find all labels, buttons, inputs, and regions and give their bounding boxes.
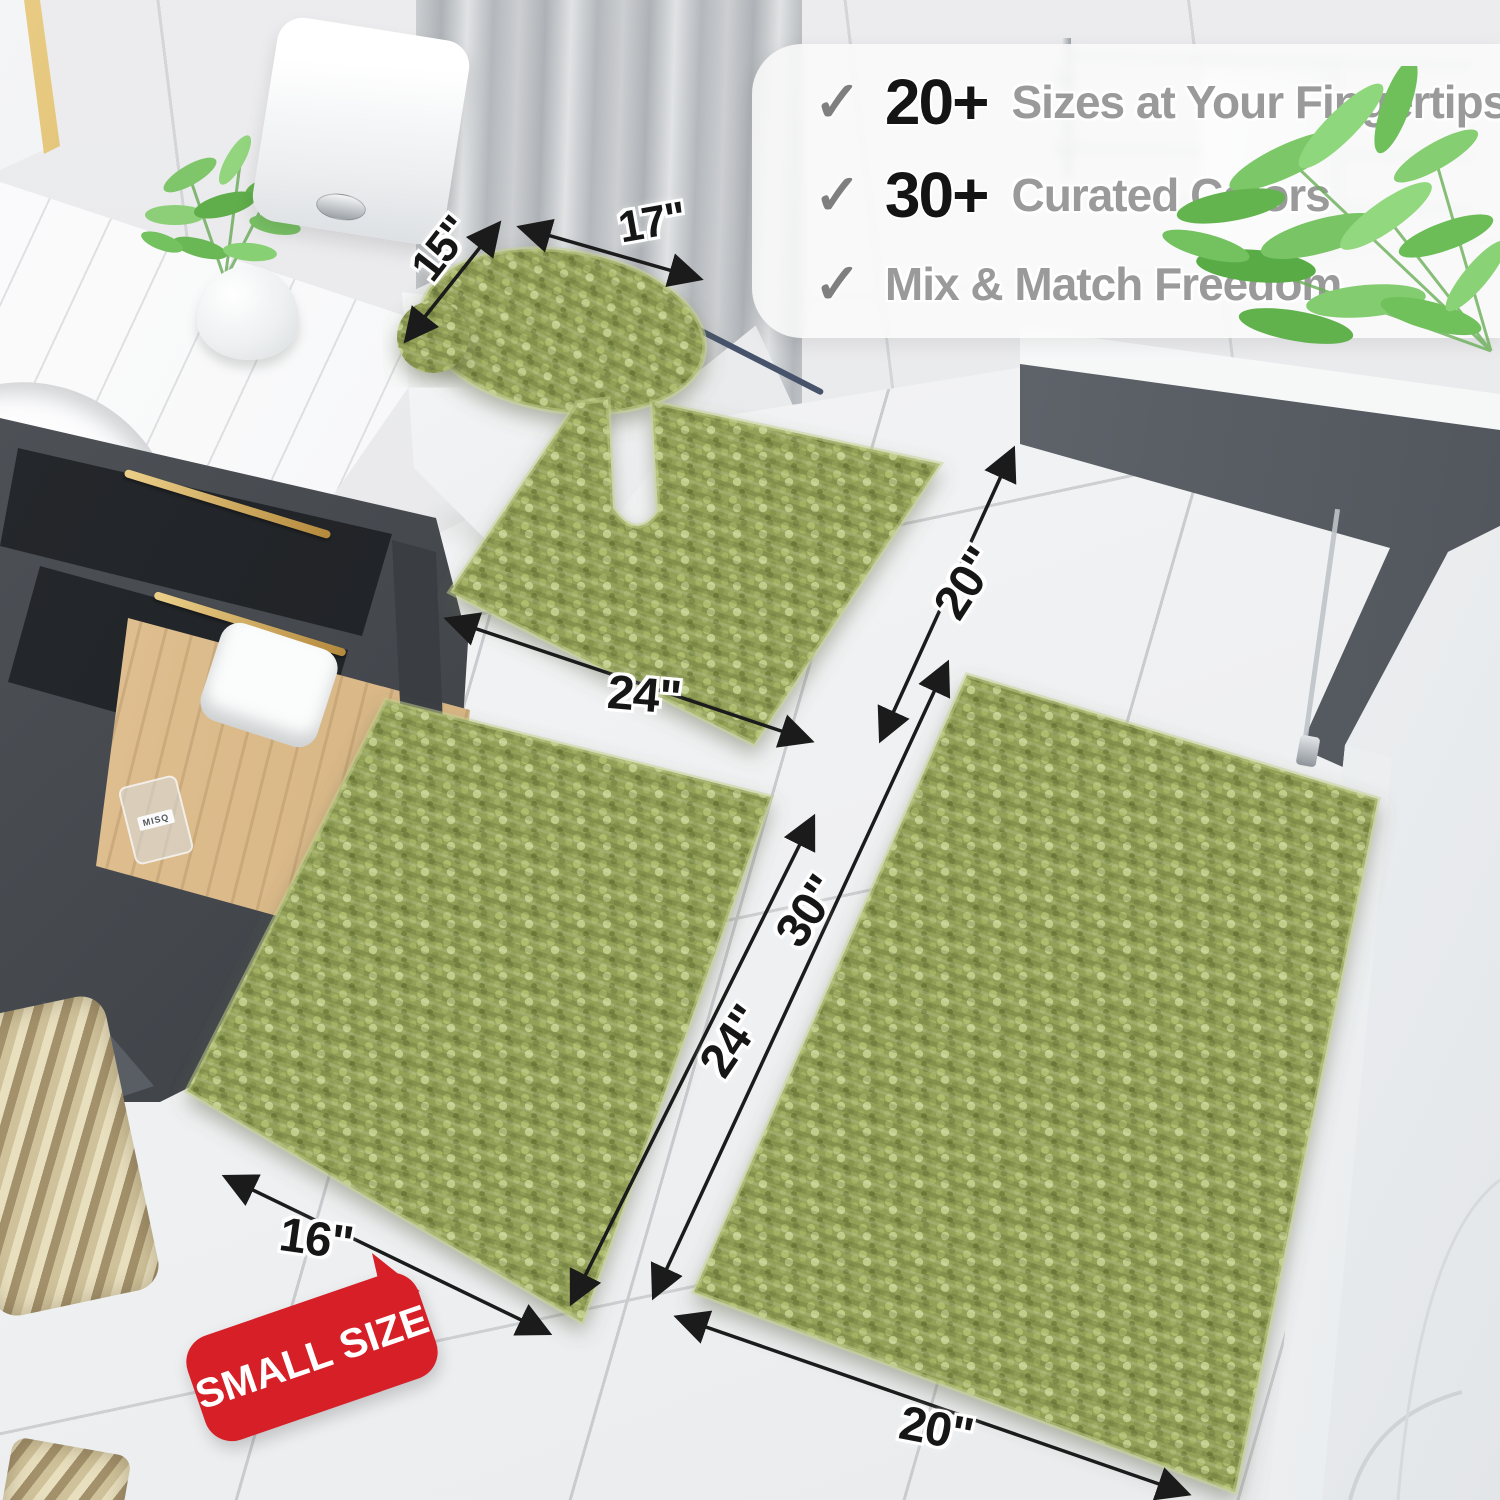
dim-label-contour-width: 24" [582, 663, 706, 728]
arrow-large-length [655, 666, 946, 1294]
bathroom-product-scene: MISQ [0, 0, 1500, 1500]
dimension-arrows [0, 0, 1500, 1500]
